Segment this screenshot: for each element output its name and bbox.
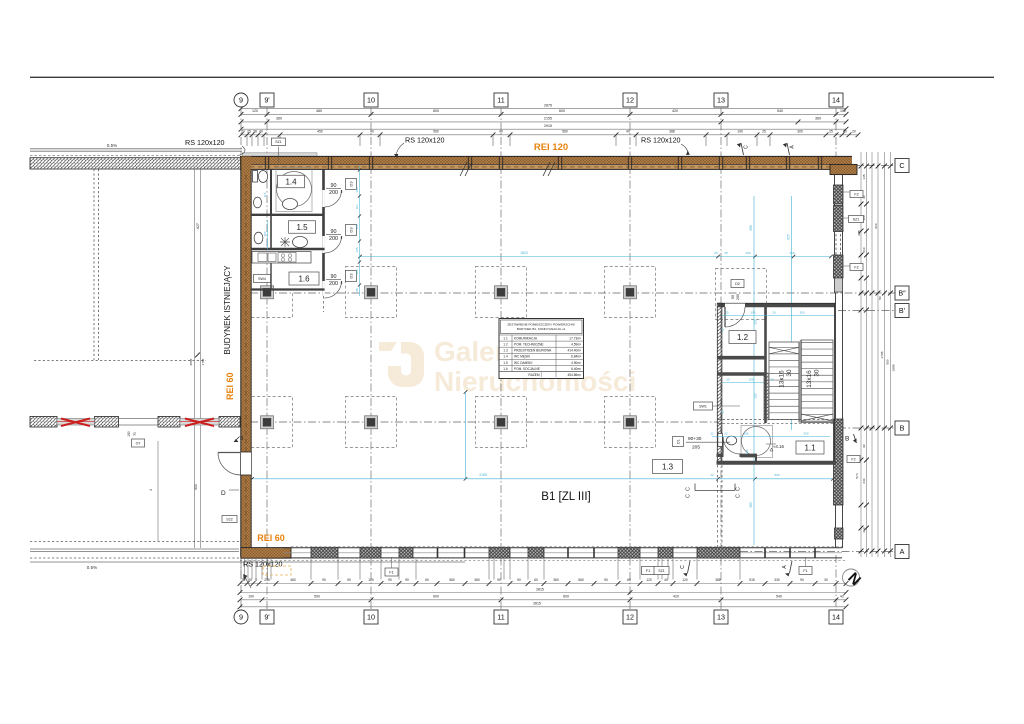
svg-text:38: 38 — [253, 129, 257, 133]
svg-text:90: 90 — [517, 578, 521, 582]
svg-text:1.2: 1.2 — [503, 343, 508, 347]
svg-text:9: 9 — [239, 96, 243, 105]
svg-text:25: 25 — [725, 311, 729, 315]
svg-text:2815: 2815 — [533, 602, 541, 606]
svg-text:102: 102 — [840, 109, 846, 113]
svg-text:REI 120: REI 120 — [534, 142, 568, 153]
svg-text:360: 360 — [815, 117, 821, 121]
svg-text:O7: O7 — [136, 441, 141, 445]
svg-text:25: 25 — [829, 129, 833, 133]
svg-text:F2: F2 — [854, 265, 858, 269]
svg-text:WC DAMSKI: WC DAMSKI — [514, 361, 533, 365]
svg-text:399: 399 — [789, 251, 794, 255]
svg-text:BUDYNEK ISTNIEJĄCY: BUDYNEK ISTNIEJĄCY — [223, 265, 232, 355]
svg-text:528: 528 — [774, 473, 779, 477]
svg-text:414.40m²: 414.40m² — [568, 349, 581, 353]
svg-text:90: 90 — [800, 578, 804, 582]
svg-text:200: 200 — [329, 190, 338, 196]
svg-text:625: 625 — [857, 230, 861, 235]
svg-text:210: 210 — [862, 247, 866, 252]
svg-text:40: 40 — [626, 129, 630, 133]
svg-text:B1 [ZL III]: B1 [ZL III] — [541, 491, 590, 503]
svg-text:627: 627 — [196, 223, 200, 229]
svg-text:RS 120x120: RS 120x120 — [641, 136, 681, 145]
svg-text:30: 30 — [814, 369, 821, 377]
svg-text:200: 200 — [329, 236, 338, 242]
svg-text:540: 540 — [777, 109, 783, 113]
svg-text:100: 100 — [248, 595, 254, 599]
svg-text:B: B — [900, 424, 905, 433]
svg-text:2155: 2155 — [544, 117, 552, 121]
svg-text:D: D — [221, 490, 226, 497]
svg-text:186: 186 — [743, 432, 748, 436]
svg-text:1.3: 1.3 — [662, 462, 674, 471]
svg-text:RS 120x120: RS 120x120 — [185, 138, 225, 147]
svg-text:20: 20 — [770, 378, 774, 382]
svg-text:REI 60: REI 60 — [257, 533, 285, 543]
svg-text:568: 568 — [749, 225, 753, 231]
svg-text:90: 90 — [604, 578, 608, 582]
svg-text:100: 100 — [355, 269, 359, 274]
svg-text:1.4: 1.4 — [503, 355, 508, 359]
svg-text:F1: F1 — [389, 570, 393, 574]
svg-text:6.40m²: 6.40m² — [571, 367, 581, 371]
svg-text:90: 90 — [497, 578, 501, 582]
svg-text:11: 11 — [497, 613, 504, 622]
svg-text:190: 190 — [127, 431, 131, 437]
svg-text:100: 100 — [745, 251, 750, 255]
svg-text:195: 195 — [750, 311, 755, 315]
svg-text:200: 200 — [736, 294, 740, 300]
svg-text:90: 90 — [322, 578, 326, 582]
svg-text:4.59m²: 4.59m² — [571, 343, 581, 347]
svg-text:5: 5 — [255, 578, 257, 582]
svg-text:2875: 2875 — [544, 103, 552, 107]
svg-text:388: 388 — [715, 578, 721, 582]
svg-text:SZ1: SZ1 — [658, 569, 665, 573]
svg-text:12: 12 — [721, 328, 725, 332]
svg-text:60: 60 — [627, 578, 631, 582]
svg-text:14: 14 — [832, 613, 840, 622]
svg-text:13: 13 — [717, 96, 725, 105]
svg-text:D3: D3 — [349, 181, 354, 187]
svg-text:38: 38 — [242, 578, 246, 582]
svg-text:110: 110 — [355, 204, 359, 209]
svg-text:2815: 2815 — [536, 587, 544, 591]
svg-text:210: 210 — [862, 527, 866, 532]
svg-text:1.2: 1.2 — [737, 333, 749, 342]
svg-text:12: 12 — [710, 473, 714, 477]
svg-text:90+30: 90+30 — [688, 436, 702, 442]
svg-text:540: 540 — [776, 595, 782, 599]
svg-text:500: 500 — [314, 595, 320, 599]
svg-text:1.4: 1.4 — [285, 177, 297, 186]
svg-text:560: 560 — [433, 129, 439, 133]
svg-text:1.6: 1.6 — [503, 367, 508, 371]
svg-text:90: 90 — [405, 578, 409, 582]
svg-text:1823: 1823 — [520, 251, 528, 255]
svg-text:383: 383 — [749, 502, 753, 508]
svg-text:388: 388 — [669, 129, 675, 133]
svg-text:114: 114 — [263, 192, 267, 197]
svg-text:195: 195 — [748, 378, 753, 382]
svg-text:360: 360 — [276, 117, 282, 121]
svg-text:600: 600 — [559, 109, 565, 113]
svg-text:2165: 2165 — [479, 473, 487, 477]
svg-text:1888: 1888 — [892, 364, 896, 371]
svg-text:F1: F1 — [646, 569, 650, 573]
svg-text:454.86m²: 454.86m² — [568, 373, 581, 377]
svg-text:A: A — [900, 547, 905, 556]
svg-text:BUDYNEK B1, KONDYGNACJA +2: BUDYNEK B1, KONDYGNACJA +2 — [517, 327, 566, 331]
svg-text:RS 120x120: RS 120x120 — [405, 136, 445, 145]
svg-text:F2: F2 — [851, 457, 855, 461]
svg-text:550: 550 — [886, 359, 890, 364]
svg-text:90: 90 — [388, 578, 392, 582]
svg-text:11: 11 — [497, 96, 504, 105]
svg-text:120: 120 — [368, 578, 374, 582]
svg-text:12: 12 — [626, 613, 634, 622]
svg-text:1.1: 1.1 — [503, 336, 508, 340]
svg-text:60: 60 — [843, 129, 847, 133]
svg-text:90: 90 — [347, 578, 351, 582]
svg-text:A: A — [782, 565, 788, 569]
svg-text:240: 240 — [862, 478, 866, 483]
svg-text:C: C — [899, 161, 904, 170]
svg-text:450: 450 — [317, 129, 323, 133]
svg-text:300: 300 — [799, 311, 804, 315]
svg-text:F2: F2 — [854, 192, 858, 196]
svg-text:42: 42 — [840, 595, 844, 599]
svg-text:4.90m²: 4.90m² — [571, 361, 581, 365]
svg-text:9: 9 — [239, 613, 243, 622]
svg-text:S22: S22 — [226, 517, 232, 521]
svg-text:C: C — [736, 487, 742, 491]
svg-text:10: 10 — [367, 613, 375, 622]
svg-text:SZ1: SZ1 — [275, 140, 281, 144]
svg-text:25: 25 — [247, 129, 251, 133]
svg-text:1.5: 1.5 — [296, 223, 308, 232]
svg-text:40: 40 — [248, 578, 252, 582]
svg-text:9': 9' — [264, 613, 270, 622]
svg-text:KOMUNIKACJA: KOMUNIKACJA — [514, 336, 538, 340]
svg-text:145: 145 — [862, 174, 866, 179]
svg-text:0.5%: 0.5% — [107, 143, 117, 148]
svg-text:12: 12 — [626, 96, 634, 105]
svg-text:90: 90 — [862, 444, 866, 448]
svg-text:120: 120 — [252, 109, 258, 113]
svg-text:1795: 1795 — [880, 351, 884, 358]
svg-text:1.1: 1.1 — [804, 443, 816, 452]
svg-text:560: 560 — [562, 129, 568, 133]
svg-text:13: 13 — [717, 613, 725, 622]
svg-text:C: C — [680, 565, 686, 569]
svg-text:360: 360 — [474, 578, 480, 582]
svg-text:200: 200 — [329, 281, 338, 287]
svg-text:2915: 2915 — [544, 124, 552, 128]
svg-text:RAZEM: RAZEM — [528, 373, 540, 377]
svg-text:90: 90 — [731, 295, 735, 299]
svg-text:480: 480 — [316, 109, 322, 113]
svg-text:154: 154 — [263, 231, 267, 236]
svg-text:560: 560 — [449, 578, 455, 582]
svg-text:195: 195 — [754, 393, 758, 398]
svg-text:WC MĘSKI: WC MĘSKI — [514, 355, 530, 359]
svg-text:C: C — [686, 487, 692, 491]
svg-text:205: 205 — [692, 445, 700, 451]
svg-text:140: 140 — [745, 449, 749, 454]
svg-text:625: 625 — [787, 234, 791, 240]
svg-text:600: 600 — [433, 595, 439, 599]
svg-text:235: 235 — [264, 578, 270, 582]
svg-text:D1: D1 — [677, 439, 681, 444]
svg-text:330: 330 — [774, 578, 780, 582]
svg-text:12: 12 — [710, 432, 714, 436]
svg-text:120: 120 — [646, 578, 652, 582]
svg-text:205: 205 — [754, 319, 758, 324]
svg-text:600: 600 — [874, 223, 878, 228]
svg-text:1.3: 1.3 — [503, 349, 508, 353]
svg-text:POM. TECHNICZNE: POM. TECHNICZNE — [514, 343, 544, 347]
svg-text:PRZESTRZEŃ BIUROWA: PRZESTRZEŃ BIUROWA — [514, 349, 552, 353]
svg-text:460: 460 — [290, 578, 296, 582]
svg-text:420: 420 — [672, 109, 678, 113]
svg-text:B: B — [845, 436, 849, 443]
svg-text:60: 60 — [425, 578, 429, 582]
svg-text:SW1: SW1 — [699, 404, 707, 408]
svg-text:17.73m²: 17.73m² — [569, 336, 581, 340]
svg-text:574: 574 — [855, 473, 859, 478]
svg-text:20: 20 — [772, 311, 776, 315]
svg-text:190: 190 — [737, 129, 743, 133]
svg-text:40: 40 — [664, 578, 668, 582]
svg-text:4: 4 — [149, 489, 153, 491]
svg-text:25: 25 — [726, 378, 730, 382]
svg-text:120: 120 — [682, 578, 688, 582]
svg-text:1.5: 1.5 — [503, 361, 508, 365]
svg-text:9': 9' — [264, 96, 270, 105]
svg-text:13x16: 13x16 — [806, 370, 813, 388]
svg-text:1705: 1705 — [201, 358, 205, 365]
svg-text:D3: D3 — [349, 273, 354, 279]
svg-text:D3: D3 — [349, 227, 354, 233]
svg-text:REI 60: REI 60 — [225, 372, 235, 400]
svg-text:POM. SOCJALNE: POM. SOCJALNE — [514, 367, 540, 371]
svg-text:70: 70 — [133, 432, 137, 436]
svg-text:30: 30 — [786, 369, 793, 377]
svg-text:C: C — [744, 145, 750, 149]
svg-text:SW4: SW4 — [258, 277, 266, 281]
svg-text:6.84m²: 6.84m² — [571, 355, 581, 359]
svg-text:125: 125 — [355, 247, 359, 252]
svg-text:300: 300 — [797, 129, 803, 133]
svg-text:ZESTAWIENIE POMIESZCZEŃ I POWI: ZESTAWIENIE POMIESZCZEŃ I POWIERZCHNI — [507, 323, 575, 327]
svg-text:600: 600 — [563, 595, 569, 599]
svg-text:25: 25 — [724, 251, 728, 255]
svg-text:B': B' — [899, 306, 906, 315]
svg-text:22: 22 — [724, 432, 728, 436]
svg-text:100: 100 — [355, 187, 359, 192]
svg-text:25: 25 — [762, 129, 766, 133]
svg-text:13x16: 13x16 — [779, 370, 786, 388]
svg-text:A: A — [790, 145, 796, 149]
svg-text:25: 25 — [721, 410, 725, 414]
svg-text:50: 50 — [878, 296, 882, 300]
svg-text:≈4.16: ≈4.16 — [773, 444, 785, 449]
svg-text:515: 515 — [749, 578, 755, 582]
svg-text:20: 20 — [852, 129, 856, 133]
svg-text:25: 25 — [714, 251, 718, 255]
svg-text:600: 600 — [433, 109, 439, 113]
svg-text:C: C — [736, 494, 742, 498]
svg-text:100: 100 — [355, 224, 359, 229]
svg-text:14: 14 — [832, 96, 840, 105]
svg-text:300: 300 — [803, 432, 808, 436]
svg-text:20: 20 — [241, 129, 245, 133]
svg-text:8885: 8885 — [189, 358, 193, 365]
svg-text:360: 360 — [553, 578, 559, 582]
svg-text:0.5%: 0.5% — [87, 565, 97, 570]
svg-text:F1: F1 — [803, 569, 807, 573]
svg-text:SZ1: SZ1 — [853, 217, 860, 221]
svg-text:60: 60 — [534, 578, 538, 582]
svg-text:1.6: 1.6 — [298, 274, 310, 283]
svg-text:B″: B″ — [898, 289, 906, 298]
svg-text:420: 420 — [673, 595, 679, 599]
svg-text:560: 560 — [578, 578, 584, 582]
svg-text:D2: D2 — [735, 282, 740, 286]
svg-text:600: 600 — [194, 484, 198, 490]
svg-text:30: 30 — [824, 578, 828, 582]
svg-text:10: 10 — [367, 96, 375, 105]
svg-text:40: 40 — [259, 129, 263, 133]
svg-text:35: 35 — [355, 288, 359, 292]
svg-text:C: C — [686, 494, 692, 498]
